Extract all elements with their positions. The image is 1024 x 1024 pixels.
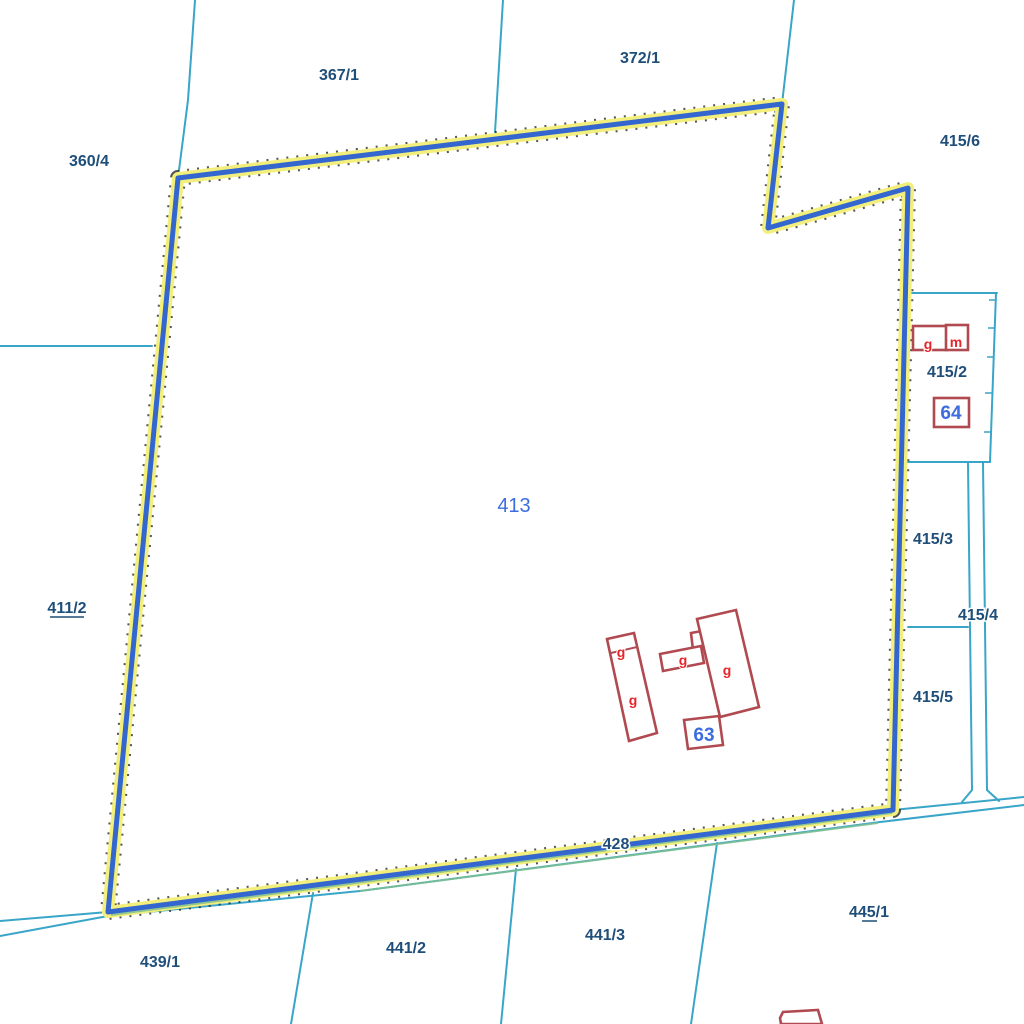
parcel-413-area[interactable] [108, 104, 908, 912]
house-number-64: 64 [940, 403, 962, 424]
parcel-label-415-3: 415/3 [913, 531, 953, 548]
parcel-label-415-5: 415/5 [913, 689, 953, 706]
parcel-label-411-2: 411/2 [47, 600, 86, 617]
parcel-label-360-4: 360/4 [69, 153, 109, 170]
cadastral-map-viewport: 360/4 367/1 372/1 415/6 415/2 415/3 415/… [0, 0, 1024, 1024]
building-use-letter-g-5: g [924, 336, 933, 352]
parcel-label-439-1: 439/1 [140, 954, 180, 971]
building-use-letter-m-1: m [950, 334, 962, 350]
cadastral-map: 360/4 367/1 372/1 415/6 415/2 415/3 415/… [0, 0, 1024, 1024]
parcel-label-415-6: 415/6 [940, 133, 980, 150]
parcel-label-441-2: 441/2 [386, 940, 426, 957]
parcel-label-441-3: 441/3 [585, 927, 625, 944]
parcel-label-367-1: 367/1 [319, 67, 359, 84]
parcel-label-445-1: 445/1 [849, 904, 889, 921]
parcel-label-415-2: 415/2 [927, 364, 967, 381]
parcel-label-415-4: 415/4 [958, 607, 998, 624]
parcel-label-372-1: 372/1 [620, 50, 660, 67]
